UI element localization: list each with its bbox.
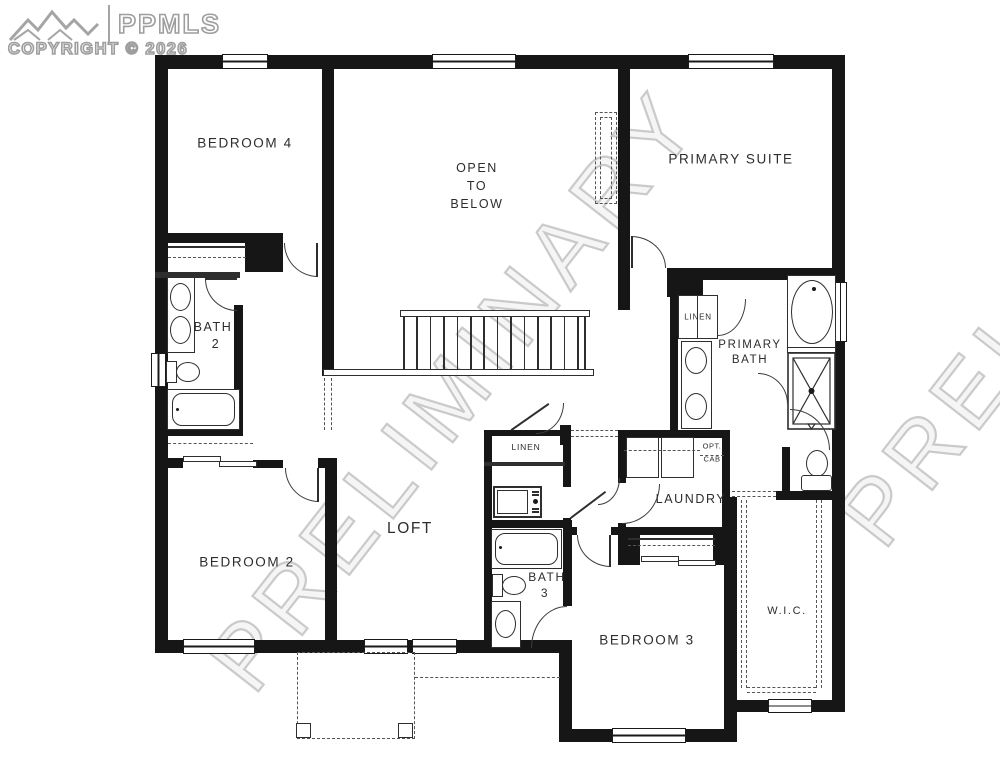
cased-opening-dashed xyxy=(732,496,776,497)
stair-tread xyxy=(550,317,552,369)
bathtub-icon xyxy=(495,533,558,565)
interior-wall xyxy=(484,462,565,466)
open-rail-dashed xyxy=(331,378,332,430)
interior-wall xyxy=(484,520,572,528)
room-label-bedroom-2: BEDROOM 2 xyxy=(199,555,294,570)
niche-dashed xyxy=(600,117,612,199)
optional-cabinet-dashed xyxy=(624,450,700,451)
wic-shelving-dashed xyxy=(741,500,742,688)
stairs-railing xyxy=(400,310,590,317)
closet-rod xyxy=(168,257,246,258)
room-label-bedroom-3: BEDROOM 3 xyxy=(599,633,694,648)
window xyxy=(768,699,812,713)
logo-divider xyxy=(108,5,110,43)
room-label-loft: LOFT xyxy=(387,520,433,538)
window xyxy=(412,639,457,654)
sink-icon xyxy=(685,347,707,374)
closet-shelf xyxy=(168,246,246,248)
interior-wall xyxy=(618,430,626,483)
door-leaf xyxy=(316,243,318,277)
room-label-primary-bath: PRIMARY xyxy=(718,339,781,351)
interior-wall xyxy=(563,445,571,487)
stair-tread xyxy=(497,317,499,369)
ppmls-logo: PPMLS COPYRIGHT © 2026 xyxy=(8,4,221,59)
interior-wall xyxy=(253,460,283,468)
stair-tread xyxy=(457,317,459,369)
wic-shelving-dashed xyxy=(746,500,747,688)
window xyxy=(432,54,516,69)
open-rail-dashed xyxy=(324,378,325,430)
stairs-railing xyxy=(323,369,594,376)
door-arc xyxy=(577,535,611,567)
interior-wall xyxy=(322,55,334,376)
interior-wall xyxy=(618,527,730,535)
interior-wall xyxy=(155,233,250,243)
interior-wall xyxy=(325,458,337,653)
door-arc xyxy=(531,606,567,648)
door-arc xyxy=(758,373,788,404)
room-label-linen: LINEN xyxy=(511,442,540,452)
appliance-knob xyxy=(533,499,538,504)
wic-shelving-dashed xyxy=(747,687,816,688)
interior-wall xyxy=(776,491,845,500)
stair-tread xyxy=(470,317,472,369)
room-label-primary-suite: PRIMARY SUITE xyxy=(668,152,793,167)
appliance-controls xyxy=(532,494,539,496)
window xyxy=(151,353,166,387)
interior-wall xyxy=(484,430,565,436)
room-label-bedroom-4: BEDROOM 4 xyxy=(197,136,292,151)
closet-rod xyxy=(168,443,253,444)
logo-brand: PPMLS xyxy=(118,9,221,40)
door-arc xyxy=(205,279,237,311)
bathtub-icon xyxy=(172,393,235,426)
interior-wall xyxy=(611,527,618,535)
sink-icon xyxy=(495,610,516,638)
appliance-controls xyxy=(532,508,539,510)
window xyxy=(688,54,774,69)
exterior-wall-bedroom3-left xyxy=(559,640,572,742)
toilet-icon xyxy=(502,576,526,595)
stair-tread xyxy=(537,317,539,369)
wic-shelving-dashed xyxy=(747,692,816,693)
bathtub-faucet xyxy=(812,287,816,291)
room-label-open-to-below: BELOW xyxy=(450,197,503,211)
stair-tread xyxy=(524,317,526,369)
sink-icon xyxy=(170,316,191,344)
room-label-open-to-below: TO xyxy=(467,179,487,193)
closet-shelf xyxy=(628,538,715,540)
room-label-bath-3: BATH xyxy=(528,570,566,584)
door-leaf xyxy=(317,468,319,502)
roof-line-dashed xyxy=(415,677,560,678)
toilet-icon xyxy=(806,450,828,477)
preliminary-watermark: PRELIMINARY xyxy=(188,69,721,711)
door-leaf xyxy=(205,278,237,280)
stair-tread xyxy=(430,317,432,369)
porch-post xyxy=(398,723,413,738)
door-arc xyxy=(285,468,319,502)
stair-tread xyxy=(577,317,579,369)
interior-wall xyxy=(618,55,630,310)
porch-post xyxy=(296,723,311,738)
window xyxy=(612,728,686,743)
interior-wall xyxy=(560,425,571,445)
interior-wall-block xyxy=(245,233,283,272)
mountain-icon xyxy=(8,4,100,44)
cased-opening-dashed xyxy=(571,430,618,431)
copyright-text: COPYRIGHT © 2026 xyxy=(8,40,221,59)
stair-tread xyxy=(510,317,512,369)
door-leaf xyxy=(609,535,611,567)
room-label-wic: W.I.C. xyxy=(767,605,807,617)
appliance-controls xyxy=(532,511,539,513)
bathtub-drain xyxy=(176,408,179,411)
sliding-door xyxy=(219,461,257,467)
window xyxy=(183,639,255,654)
appliance-icon xyxy=(497,490,528,514)
door-arc xyxy=(622,484,660,524)
floor-plan: PRELIMINARY PRELIMINARY xyxy=(0,0,1000,768)
toilet-icon xyxy=(176,362,200,382)
sink-icon xyxy=(170,283,191,311)
room-label-laundry: LAUNDRY xyxy=(656,492,727,506)
sink-icon xyxy=(685,393,707,420)
appliance-controls xyxy=(532,491,539,493)
room-label-linen: LINEN xyxy=(684,313,712,322)
cased-opening-dashed xyxy=(571,436,618,437)
dryer-icon xyxy=(661,437,694,478)
interior-wall xyxy=(563,648,572,653)
interior-wall xyxy=(724,497,737,702)
stair-tread xyxy=(416,317,418,369)
window xyxy=(222,54,268,69)
room-label-bath-2: 2 xyxy=(212,337,221,351)
stair-tread xyxy=(483,317,485,369)
stair-tread xyxy=(403,317,405,369)
toilet-icon xyxy=(801,475,832,491)
stair-treads xyxy=(401,317,589,369)
washer-icon xyxy=(626,437,659,478)
door-arc xyxy=(284,243,318,277)
room-label-open-to-below: OPEN xyxy=(456,161,498,175)
room-label-bath-2: BATH xyxy=(194,320,233,334)
door-arc xyxy=(631,236,666,268)
room-label-primary-bath: BATH xyxy=(732,354,768,366)
closet-rod xyxy=(628,545,715,546)
cased-opening-dashed xyxy=(732,491,776,492)
stair-tread xyxy=(564,317,566,369)
stair-edge xyxy=(584,317,586,369)
interior-wall xyxy=(670,280,678,430)
wic-shelving-dashed xyxy=(816,500,817,688)
label-opt-cab: OPT. xyxy=(703,442,722,451)
room-label-bath-3: 3 xyxy=(541,586,549,600)
interior-wall xyxy=(155,458,183,468)
stair-tread xyxy=(443,317,445,369)
door-leaf xyxy=(631,236,633,268)
sliding-door xyxy=(183,456,221,462)
sliding-door xyxy=(678,560,716,566)
door-arc xyxy=(718,299,746,336)
bathtub-drain xyxy=(499,546,502,549)
door-arc xyxy=(598,478,620,505)
wic-shelving-dashed xyxy=(821,500,822,688)
label-opt-cab: CAB xyxy=(704,455,721,464)
sliding-door xyxy=(641,556,679,562)
